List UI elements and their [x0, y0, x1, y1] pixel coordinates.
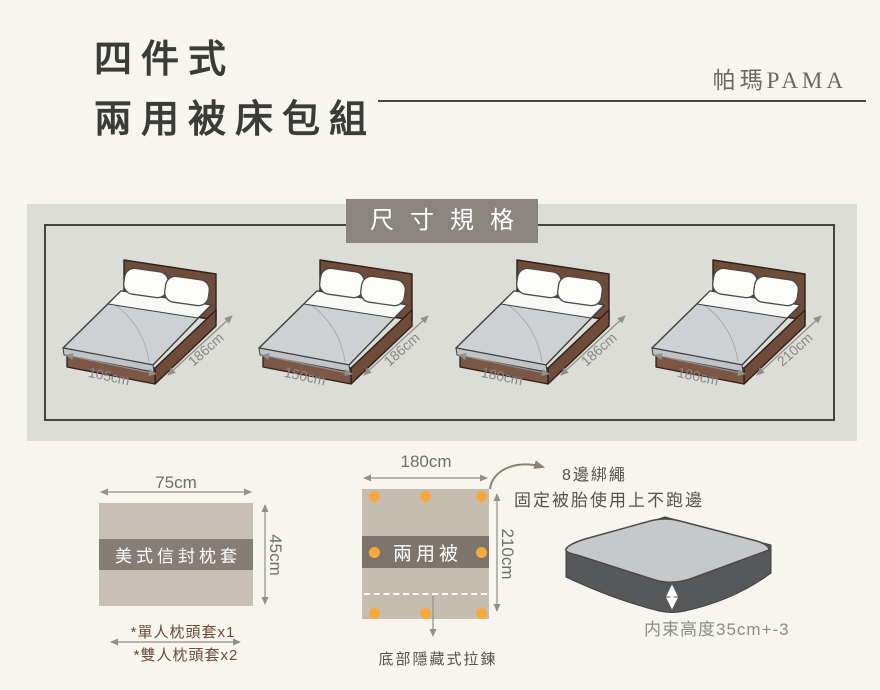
zipper-note: 底部隱藏式拉鍊: [358, 648, 518, 669]
brand-logo: 帕瑪PAMA: [713, 61, 847, 95]
page-title-line1: 四件式: [94, 30, 376, 90]
page-title: 四件式 兩用被床包組: [94, 30, 376, 150]
pillow-height-label: 45cm: [265, 515, 285, 595]
bedding-spec-poster: 四件式 兩用被床包組 帕瑪PAMA 尺寸規格 105cm 186cm: [0, 0, 880, 690]
header-rule: [378, 100, 866, 102]
bed-figure-queen: 180cm 186cm: [445, 254, 635, 394]
tie-rope-title: 8邊綁繩: [562, 461, 627, 485]
size-spec-panel: 尺寸規格 105cm 186cm: [27, 204, 857, 441]
bed-figure-single: 105cm 186cm: [52, 254, 242, 394]
page-title-line2: 兩用被床包組: [94, 90, 376, 150]
bed-figure-double: 150cm 186cm: [248, 254, 438, 394]
pillow-note-double: *雙人枕頭套x2: [106, 644, 266, 665]
pillow-note-single: *單人枕頭套x1: [103, 621, 263, 642]
pillow-width-label: 75cm: [131, 473, 221, 493]
mattress-height-note: 内束高度35cm+-3: [644, 615, 790, 640]
quilt-height-label: 210cm: [497, 514, 517, 594]
bed-size-row: 105cm 186cm 150cm 186cm: [46, 226, 837, 419]
quilt-width-label: 180cm: [381, 452, 471, 472]
bed-figure-king: 180cm 210cm: [641, 254, 831, 394]
